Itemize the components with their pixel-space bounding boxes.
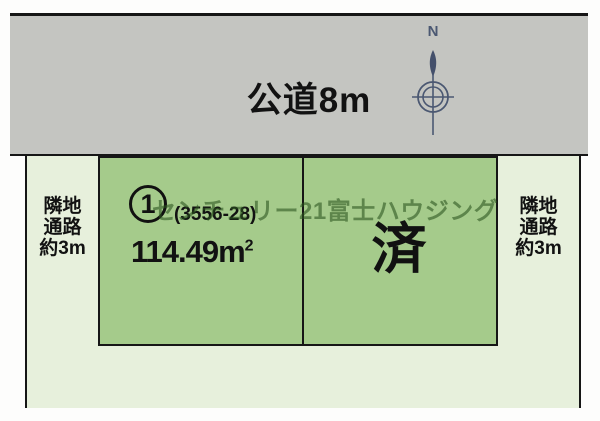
right-passage-line-1: 隣地: [498, 196, 579, 217]
left-passage-label: 隣地 通路 約3m: [27, 196, 98, 259]
road-label: 公道8m: [189, 72, 429, 123]
lot-status-label: 済: [304, 220, 494, 278]
left-passage-line-1: 隣地: [27, 196, 98, 217]
lot-area-superscript: 2: [245, 238, 254, 255]
right-passage-line-3: 約3m: [498, 238, 579, 259]
right-passage-line-2: 通路: [498, 217, 579, 238]
compass-icon: [408, 44, 458, 138]
compass-needle: [430, 50, 436, 77]
land-plot-diagram: 公道8m N 隣地 通路 約3m 隣地 通路 約3m 1 (3556-28) 1…: [0, 0, 600, 421]
lot-area-label: 114.49m2: [131, 234, 254, 270]
compass-north-label: N: [418, 23, 448, 40]
left-passage-line-3: 約3m: [27, 238, 98, 259]
left-passage-line-2: 通路: [27, 217, 98, 238]
lot-area-value: 114.49m: [131, 234, 245, 269]
right-passage-label: 隣地 通路 約3m: [498, 196, 579, 259]
plot-parcel: 1 (3556-28) 114.49m2 済: [98, 156, 498, 346]
watermark-text: センチュリー21富士ハウジング: [152, 191, 498, 226]
